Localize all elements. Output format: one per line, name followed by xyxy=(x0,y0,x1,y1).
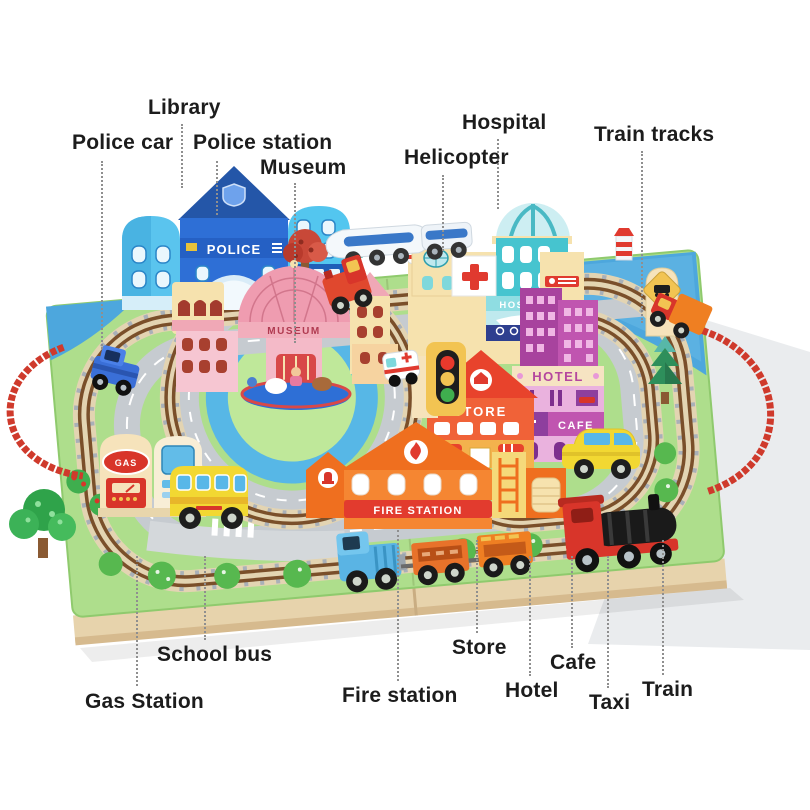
hotel-sign: HOTEL xyxy=(532,369,584,384)
lighthouse xyxy=(614,228,634,260)
label-fire-station: Fire station xyxy=(342,684,458,708)
label-gas-station: Gas Station xyxy=(85,690,204,714)
leader-fire-station xyxy=(397,530,399,681)
leader-helicopter xyxy=(442,175,444,251)
leader-train xyxy=(662,540,664,675)
gas-sign: GAS xyxy=(115,458,138,468)
label-school-bus: School bus xyxy=(157,643,272,667)
leader-cafe xyxy=(571,556,573,648)
label-taxi: Taxi xyxy=(589,691,630,715)
leader-school-bus xyxy=(204,556,206,640)
leader-store xyxy=(476,540,478,633)
leader-police-station xyxy=(216,161,218,215)
label-museum: Museum xyxy=(260,156,346,180)
label-store: Store xyxy=(452,636,507,660)
leader-train-tracks xyxy=(641,151,643,323)
product-photo: POLICE xyxy=(0,0,810,810)
label-helicopter: Helicopter xyxy=(404,146,509,170)
leader-museum xyxy=(294,183,296,343)
leader-police-car xyxy=(101,161,103,349)
label-hospital: Hospital xyxy=(462,111,546,135)
label-library: Library xyxy=(148,96,221,120)
label-police-car: Police car xyxy=(72,131,173,155)
leader-gas-station xyxy=(136,556,138,686)
leader-hotel xyxy=(529,556,531,676)
label-cafe: Cafe xyxy=(550,651,596,675)
label-police-station: Police station xyxy=(193,131,332,155)
leader-library xyxy=(181,124,183,188)
fire-station-sign: FIRE STATION xyxy=(373,505,462,517)
label-train: Train xyxy=(642,678,693,702)
police-sign: POLICE xyxy=(207,242,261,257)
label-hotel: Hotel xyxy=(505,679,559,703)
ladder-block xyxy=(492,452,526,518)
label-train-tracks: Train tracks xyxy=(594,123,714,147)
leader-taxi xyxy=(607,556,609,688)
